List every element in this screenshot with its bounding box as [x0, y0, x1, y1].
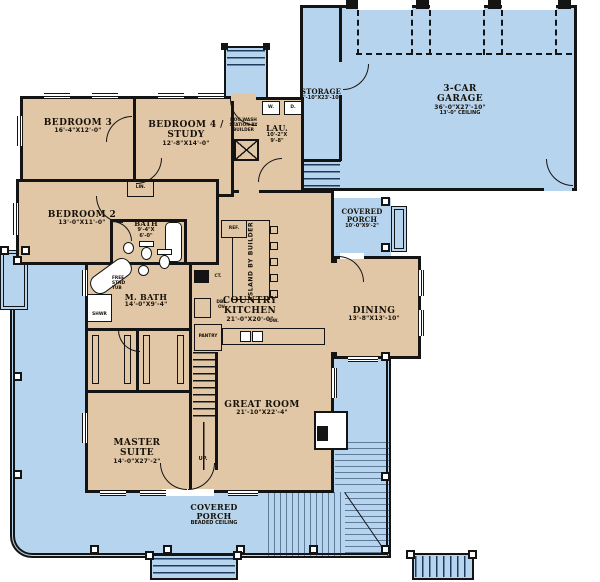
porch-post [233, 551, 242, 560]
label-dining: DINING 13'-8"X13'-10" [332, 306, 416, 323]
porch-post [13, 256, 22, 265]
porch-post [381, 472, 390, 481]
label-storage: STORAGE 6'-10"X23'-10" [298, 88, 344, 102]
shower-label: SHWR [87, 312, 112, 317]
mbath-sink [138, 265, 149, 276]
cooktop-box [194, 270, 209, 283]
mbath-toilet [159, 255, 170, 269]
storage-partition-wall [339, 8, 342, 62]
stairs-up-label: UP. [190, 457, 216, 463]
window [100, 490, 126, 496]
garage-side-door-gap [544, 185, 572, 191]
label-garage: 3-CAR GARAGE 36'-0"X27'-10" 13'-0" CEILI… [412, 84, 508, 117]
kitchen-counter [222, 328, 325, 345]
garage-door-opening [502, 2, 556, 10]
island-stool [270, 242, 278, 250]
bedroom4-name2: STUDY [146, 130, 226, 140]
garage-door-dashed-line [429, 10, 431, 55]
garage-pier [558, 0, 571, 9]
bedroom3-dims: 16'-4"X12'-0" [28, 128, 128, 135]
porch-post [381, 243, 390, 252]
laundry-dims2: 9'-8" [254, 139, 300, 145]
tub-line3: TUB [112, 286, 136, 291]
porch-post [13, 372, 22, 381]
garage-pier [488, 0, 501, 9]
bedroom2-dims: 13'-0"X11'-0" [32, 220, 132, 227]
label-bedroom2: BEDROOM 2 13'-0"X11'-0" [32, 210, 132, 227]
bedroom4-name: BEDROOM 4 / [146, 120, 226, 130]
porch-post [406, 550, 415, 559]
dryer-label: D. [284, 105, 302, 110]
window [82, 270, 88, 296]
porch-steps-right-treads [415, 556, 471, 577]
window [348, 356, 378, 362]
label-porch-lower: COVERED PORCH BEADED CEILING [168, 503, 260, 527]
porch-post [381, 197, 390, 206]
porch-post [13, 470, 22, 479]
garage-door-opening [430, 2, 484, 10]
label-bedroom4: BEDROOM 4 / STUDY 12'-8"X14'-0" [146, 120, 226, 147]
front-stoop-steps [227, 50, 265, 70]
pantry-label: PANTRY [194, 334, 222, 339]
storage-bottom-wall [303, 159, 341, 162]
porch-post [90, 545, 99, 554]
garage-ceiling-note: 13'-0" CEILING [412, 111, 508, 117]
window [228, 490, 258, 496]
island-stool [270, 226, 278, 234]
stoop-post [221, 43, 228, 50]
bath-dims2: 6'-0" [124, 234, 168, 240]
master-suite-name: MASTER [94, 438, 180, 448]
label-master-bath: M. BATH 14'-0"X9'-4" [110, 293, 182, 309]
refrigerator-label: REF. [221, 226, 247, 231]
cooktop-label: CT. [210, 274, 226, 279]
garage-door-dashed-line [501, 10, 503, 55]
porch-post [381, 352, 390, 361]
kitchen-dims: 21'-0"X20'-0" [208, 317, 292, 324]
kitchen-name: COUNTRY [208, 296, 292, 306]
garage-door-opening [358, 2, 412, 10]
closet-rod [177, 335, 184, 384]
porch-steps-center-treads [153, 558, 235, 578]
linen-label: LIN. [127, 185, 154, 190]
floor-plan: UP. LIN. W. D. DOG WASH STATION BY BUILD… [0, 0, 600, 582]
wall-closets-master [88, 390, 189, 393]
window [198, 93, 224, 99]
deck-boards-bottom [268, 492, 345, 556]
freestanding-tub-label: FREE STND TUB [112, 276, 136, 291]
porch-post [468, 550, 477, 559]
porch-walkway-rail [391, 206, 407, 252]
closet-rod [143, 335, 150, 384]
porch-post [145, 551, 154, 560]
greatroom-porch-door-gap [162, 489, 214, 496]
storage-partition-wall [339, 95, 342, 161]
label-master-suite: MASTER SUITE 14'-0"X27'-2" [94, 438, 180, 465]
master-suite-name2: SUITE [94, 448, 180, 458]
storage-dims: 6'-10"X23'-10" [298, 96, 344, 102]
window [44, 93, 70, 99]
label-bath: BATH 9'-4"X 6'-0" [124, 220, 168, 239]
porch-post [381, 545, 390, 554]
bedroom4-dims: 12'-8"X14'-0" [146, 141, 226, 148]
dining-dims: 13'-8"X13'-10" [332, 316, 416, 323]
porch-upper-dims: 10'-0"X9'-2" [334, 224, 390, 230]
garage-pier [416, 0, 429, 9]
window [92, 93, 118, 99]
garage-door-dashed-line [357, 10, 359, 55]
master-suite-dims: 14'-0"X27'-2" [94, 459, 180, 466]
kitchen-name2: KITCHEN [208, 306, 292, 316]
porch-post [163, 545, 172, 554]
washer-label: W. [262, 105, 280, 110]
label-great-room: GREAT ROOM 21'-10"X22'-4" [210, 400, 314, 417]
garage-door-dashed-line [555, 10, 557, 55]
bath-toilet [141, 247, 152, 260]
garage-door-dashed-line [483, 10, 485, 55]
fireplace-firebox [317, 426, 328, 441]
window [17, 116, 23, 146]
porch-lower-note: BEADED CEILING [168, 521, 260, 527]
garage-door-dashed-line [356, 53, 572, 55]
island-stool [270, 258, 278, 266]
kitchen-sink [240, 331, 251, 342]
storage-steps [303, 164, 340, 188]
label-kitchen: COUNTRY KITCHEN 21'-0"X20'-0" [208, 296, 292, 323]
window [418, 270, 424, 296]
label-laundry: LAU. 10'-2"X 9'-8" [254, 124, 300, 144]
shower [87, 294, 112, 322]
opening-hall-kitchen [239, 189, 259, 197]
window [13, 203, 19, 235]
window [331, 368, 337, 398]
label-porch-upper: COVERED PORCH 10'-0"X9'-2" [334, 208, 390, 230]
porch-post [0, 246, 9, 255]
window [158, 93, 184, 99]
closet-rod [92, 335, 99, 384]
porch-post [309, 545, 318, 554]
great-room-dims: 21'-10"X22'-4" [210, 410, 314, 417]
mbath-dims: 14'-0"X9'-4" [110, 302, 182, 309]
window [82, 413, 88, 443]
garage-name2: GARAGE [412, 94, 508, 104]
garage-name: 3-CAR [412, 84, 508, 94]
garage-pier [346, 0, 358, 9]
garage-door-dashed-line [411, 10, 413, 55]
island-stool [270, 274, 278, 282]
label-bedroom3: BEDROOM 3 16'-4"X12'-0" [28, 118, 128, 135]
window [140, 490, 166, 496]
window [418, 310, 424, 336]
porch-post [21, 246, 30, 255]
kitchen-sink [252, 331, 263, 342]
stoop-post [263, 43, 270, 50]
bath-sink [123, 242, 134, 254]
